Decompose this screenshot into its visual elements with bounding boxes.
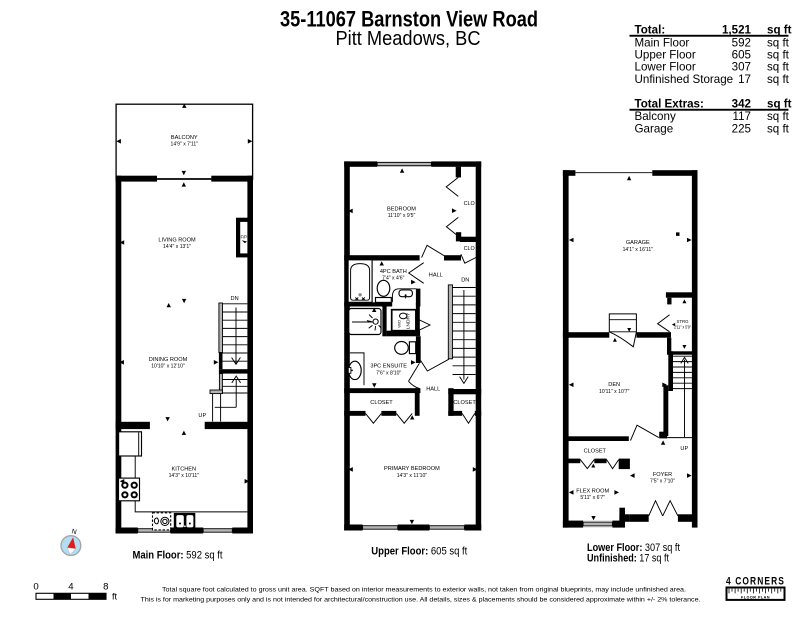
svg-text:DEN: DEN (608, 382, 620, 388)
svg-text:UP: UP (198, 413, 206, 419)
svg-text:FLOOR PLAN: FLOOR PLAN (741, 596, 770, 600)
svg-text:KITCHEN: KITCHEN (172, 466, 197, 472)
svg-text:342: 342 (732, 98, 751, 111)
svg-text:4: 4 (68, 582, 74, 593)
svg-text:117: 117 (733, 110, 751, 123)
svg-text:HALL: HALL (429, 273, 443, 279)
svg-text:Upper Floor: 605 sq ft: Upper Floor: 605 sq ft (371, 546, 468, 558)
svg-text:5'11" x 6'7": 5'11" x 6'7" (580, 495, 605, 501)
svg-text:PRIMARY BEDROOM: PRIMARY BEDROOM (384, 466, 440, 472)
svg-text:10'10" x 12'10": 10'10" x 12'10" (151, 363, 185, 369)
svg-text:225: 225 (732, 122, 751, 135)
svg-text:LNDRY: LNDRY (405, 312, 411, 329)
svg-text:10'11" x 10'7": 10'11" x 10'7" (599, 389, 630, 395)
svg-text:8: 8 (103, 582, 108, 593)
svg-text:14'1" x 16'11": 14'1" x 16'11" (623, 247, 654, 253)
svg-text:14'9" x 7'11": 14'9" x 7'11" (171, 142, 199, 148)
svg-text:Upper Floor: Upper Floor (635, 48, 696, 61)
svg-text:CLO: CLO (464, 201, 475, 207)
svg-text:14'3" x 10'11": 14'3" x 10'11" (169, 473, 200, 479)
svg-text:307: 307 (732, 61, 751, 74)
svg-text:DN: DN (231, 296, 239, 302)
svg-text:11'10" x 9'5": 11'10" x 9'5" (388, 213, 416, 219)
svg-text:Unfinished Storage: Unfinished Storage (635, 73, 734, 86)
svg-text:CLOSET: CLOSET (453, 400, 476, 406)
svg-text:sq ft: sq ft (767, 61, 790, 74)
svg-text:HALL: HALL (426, 387, 440, 393)
svg-text:CLOSET: CLOSET (584, 448, 607, 454)
svg-text:sq ft: sq ft (767, 48, 790, 61)
svg-text:CLO: CLO (464, 246, 475, 252)
svg-text:DINING ROOM: DINING ROOM (149, 357, 188, 363)
svg-text:FOYER: FOYER (653, 472, 672, 478)
svg-text:This is for marketing purposes: This is for marketing purposes only and … (141, 596, 701, 603)
svg-text:Lower Floor: Lower Floor (635, 61, 696, 74)
svg-text:Total Extras:: Total Extras: (635, 98, 704, 111)
svg-text:F/P: F/P (240, 235, 247, 240)
svg-text:605: 605 (732, 48, 751, 61)
svg-text:2'11" x 5'9": 2'11" x 5'9" (674, 325, 691, 330)
svg-text:W/D: W/D (396, 320, 401, 328)
svg-text:7'6" x 8'10": 7'6" x 8'10" (376, 370, 401, 376)
svg-text:Main Floor: 592 sq ft: Main Floor: 592 sq ft (133, 550, 224, 562)
svg-text:7'5" x 7'10": 7'5" x 7'10" (650, 479, 675, 485)
svg-text:Garage: Garage (635, 122, 674, 135)
svg-text:3PC ENSUITE: 3PC ENSUITE (370, 363, 407, 369)
svg-text:FLEX ROOM: FLEX ROOM (576, 488, 609, 494)
svg-text:Unfinished: 17 sq ft: Unfinished: 17 sq ft (587, 552, 670, 564)
svg-text:sq ft: sq ft (767, 98, 792, 111)
svg-text:17: 17 (738, 73, 751, 86)
svg-text:GARAGE: GARAGE (626, 240, 650, 246)
svg-text:sq ft: sq ft (767, 24, 792, 37)
svg-text:ft: ft (112, 592, 118, 602)
svg-text:STRG: STRG (677, 319, 690, 324)
svg-text:Balcony: Balcony (635, 110, 676, 123)
svg-text:Total:: Total: (635, 24, 666, 37)
svg-text:DN: DN (461, 278, 469, 284)
svg-text:BALCONY: BALCONY (171, 135, 198, 141)
svg-text:4 CORNERS: 4 CORNERS (726, 575, 785, 587)
svg-text:BEDROOM: BEDROOM (387, 207, 416, 213)
svg-text:4PC BATH: 4PC BATH (380, 269, 407, 275)
svg-text:1,521: 1,521 (722, 24, 752, 37)
svg-text:sq ft: sq ft (767, 122, 790, 135)
svg-text:LIVING ROOM: LIVING ROOM (158, 238, 196, 244)
svg-text:14'3" x 11'10": 14'3" x 11'10" (397, 473, 428, 479)
svg-text:sq ft: sq ft (767, 73, 790, 86)
svg-text:Total square foot calculated t: Total square foot calculated to gross un… (162, 587, 686, 594)
svg-text:14'4" x 13'1": 14'4" x 13'1" (163, 244, 191, 250)
svg-text:sq ft: sq ft (767, 110, 790, 123)
svg-text:UP: UP (680, 446, 688, 452)
svg-text:Pitt Meadows, BC: Pitt Meadows, BC (336, 28, 481, 50)
svg-text:0: 0 (33, 582, 38, 593)
svg-text:CLOSET: CLOSET (370, 400, 393, 406)
